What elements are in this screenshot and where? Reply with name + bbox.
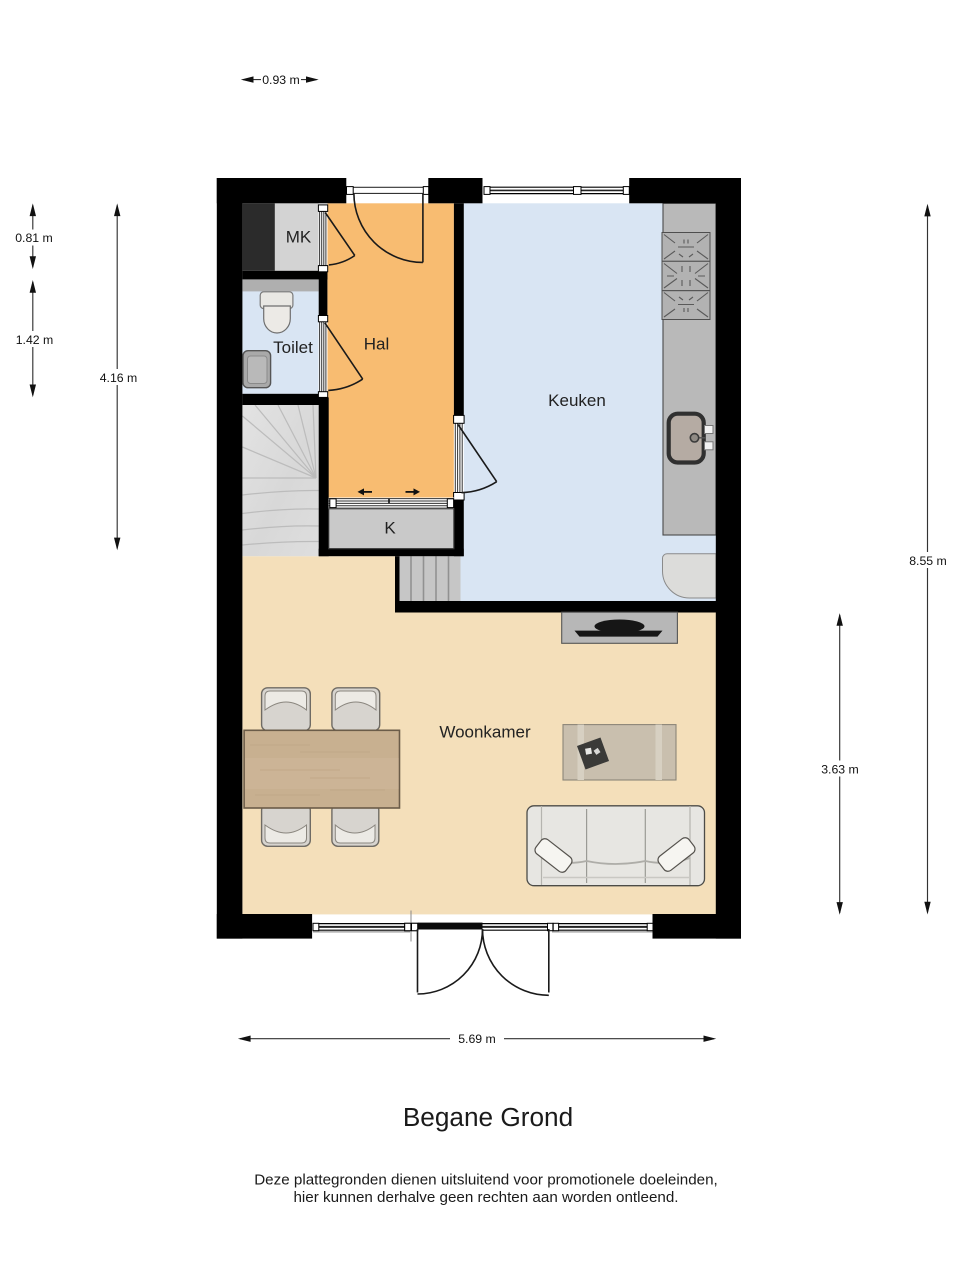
svg-text:K: K [384,519,396,538]
svg-text:MK: MK [286,228,312,247]
svg-text:Keuken: Keuken [548,391,606,410]
svg-text:hier kunnen derhalve geen rech: hier kunnen derhalve geen rechten aan wo… [293,1189,678,1206]
svg-text:Deze plattegronden dienen uits: Deze plattegronden dienen uitsluitend vo… [254,1172,718,1189]
svg-text:8.55 m: 8.55 m [909,554,947,568]
svg-text:3.63 m: 3.63 m [821,762,859,776]
svg-text:4.16 m: 4.16 m [100,371,138,385]
svg-text:0.93 m: 0.93 m [262,73,300,87]
svg-text:1.42 m: 1.42 m [16,333,54,347]
svg-text:Toilet: Toilet [273,338,313,357]
svg-text:Begane Grond: Begane Grond [403,1102,573,1132]
svg-text:Hal: Hal [364,335,390,354]
svg-text:0.81 m: 0.81 m [15,231,53,245]
svg-text:5.69 m: 5.69 m [458,1032,496,1046]
svg-text:Woonkamer: Woonkamer [439,723,531,742]
